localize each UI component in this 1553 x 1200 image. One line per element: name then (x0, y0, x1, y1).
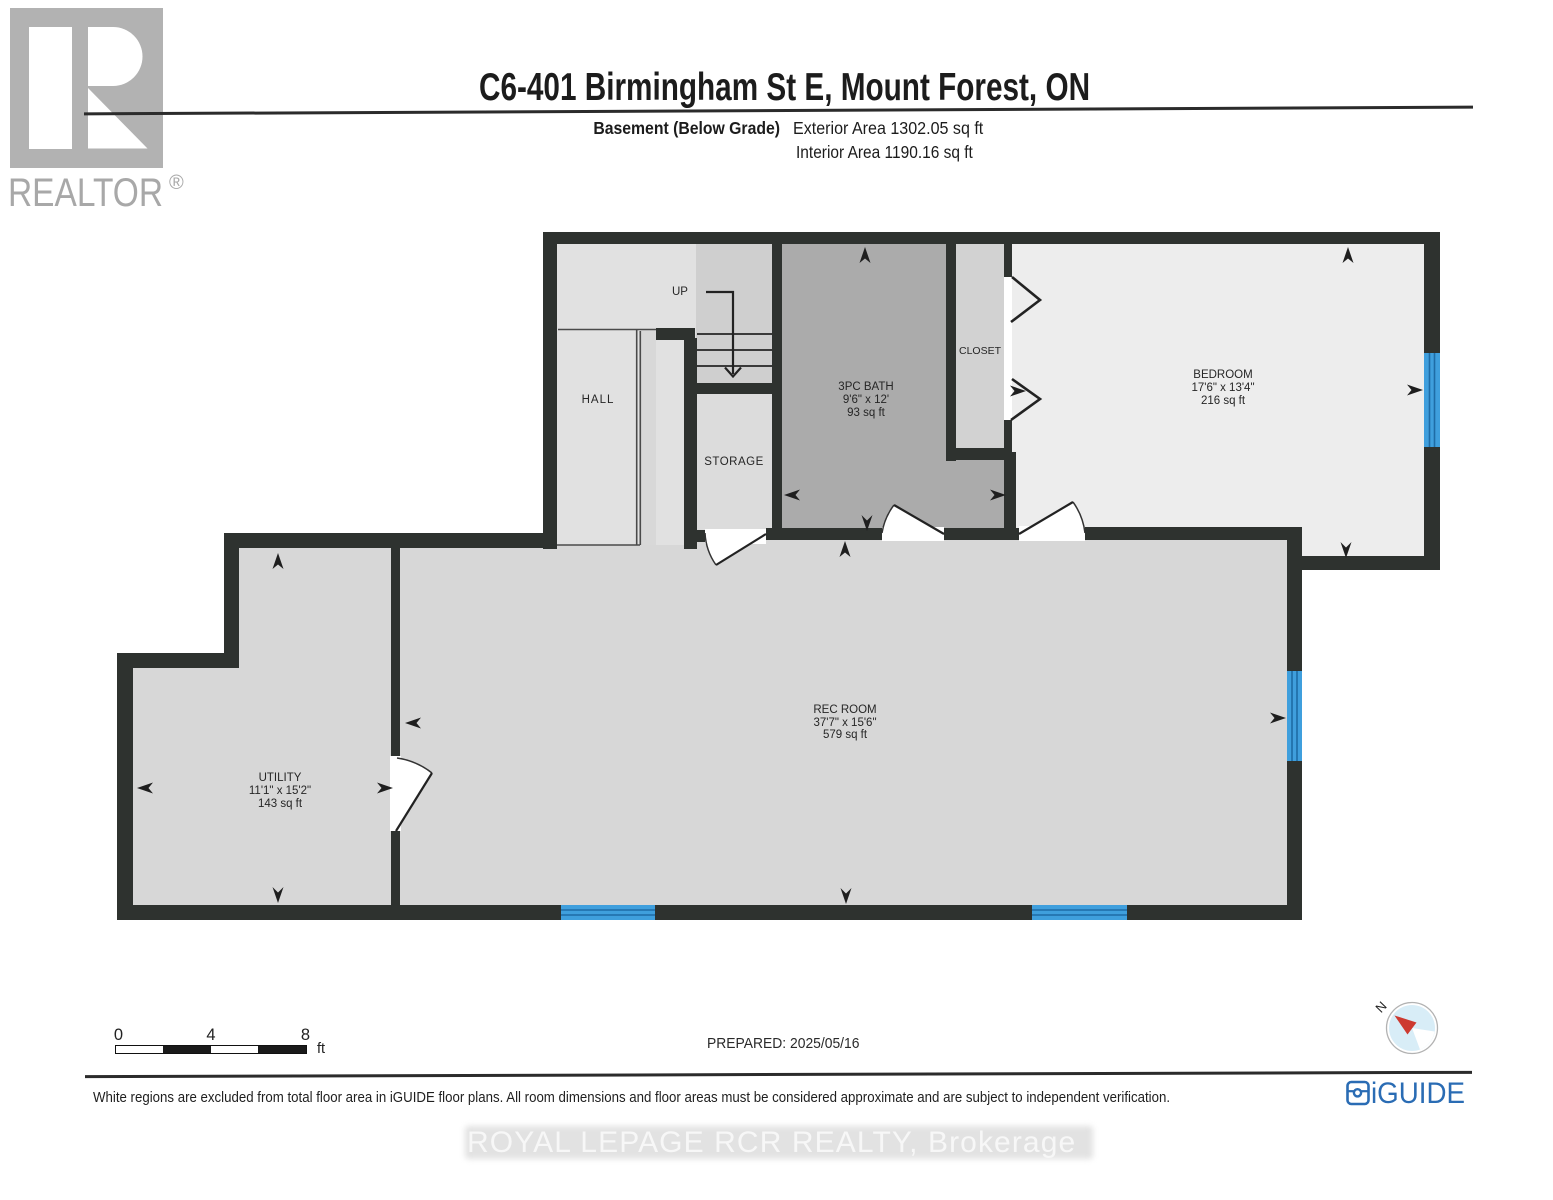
svg-text:93 sq ft: 93 sq ft (847, 407, 886, 419)
svg-text:3PC BATH: 3PC BATH (838, 381, 893, 393)
svg-text:iGUIDE: iGUIDE (1371, 1077, 1465, 1110)
svg-text:UP: UP (672, 286, 688, 298)
svg-text:REALTOR: REALTOR (8, 171, 163, 215)
svg-text:11'1" x 15'2": 11'1" x 15'2" (249, 785, 311, 797)
svg-text:REC ROOM: REC ROOM (813, 704, 876, 716)
svg-text:17'6" x 13'4": 17'6" x 13'4" (1191, 382, 1254, 394)
svg-text:UTILITY: UTILITY (259, 772, 302, 784)
svg-text:579 sq ft: 579 sq ft (823, 729, 868, 741)
svg-text:37'7" x 15'6": 37'7" x 15'6" (813, 717, 876, 729)
svg-text:216 sq ft: 216 sq ft (1201, 395, 1246, 407)
svg-text:BEDROOM: BEDROOM (1193, 369, 1252, 381)
svg-text:®: ® (169, 172, 184, 194)
svg-text:HALL: HALL (582, 394, 615, 406)
svg-text:9'6" x 12': 9'6" x 12' (843, 394, 889, 406)
svg-text:143 sq ft: 143 sq ft (258, 798, 303, 810)
svg-text:N: N (1372, 998, 1389, 1015)
svg-text:CLOSET: CLOSET (959, 345, 1002, 357)
svg-text:STORAGE: STORAGE (704, 456, 764, 468)
